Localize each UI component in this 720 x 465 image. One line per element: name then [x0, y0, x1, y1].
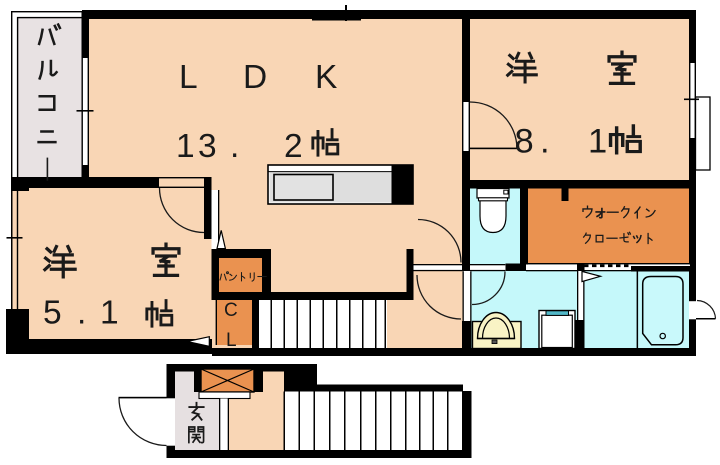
svg-text:.: .	[77, 295, 86, 332]
svg-text:2: 2	[284, 128, 303, 165]
svg-text:.: .	[230, 128, 239, 165]
svg-text:1: 1	[176, 128, 195, 165]
svg-text:.: .	[540, 123, 550, 161]
svg-text:L: L	[226, 330, 237, 351]
svg-text:L: L	[179, 59, 198, 96]
svg-text:K: K	[315, 59, 337, 96]
svg-text:1: 1	[100, 295, 119, 332]
svg-text:5: 5	[43, 295, 62, 332]
svg-text:C: C	[224, 300, 238, 321]
svg-text:D: D	[243, 59, 267, 96]
svg-text:8: 8	[515, 123, 534, 161]
svg-text:1: 1	[588, 123, 607, 161]
svg-text:3: 3	[198, 128, 217, 165]
